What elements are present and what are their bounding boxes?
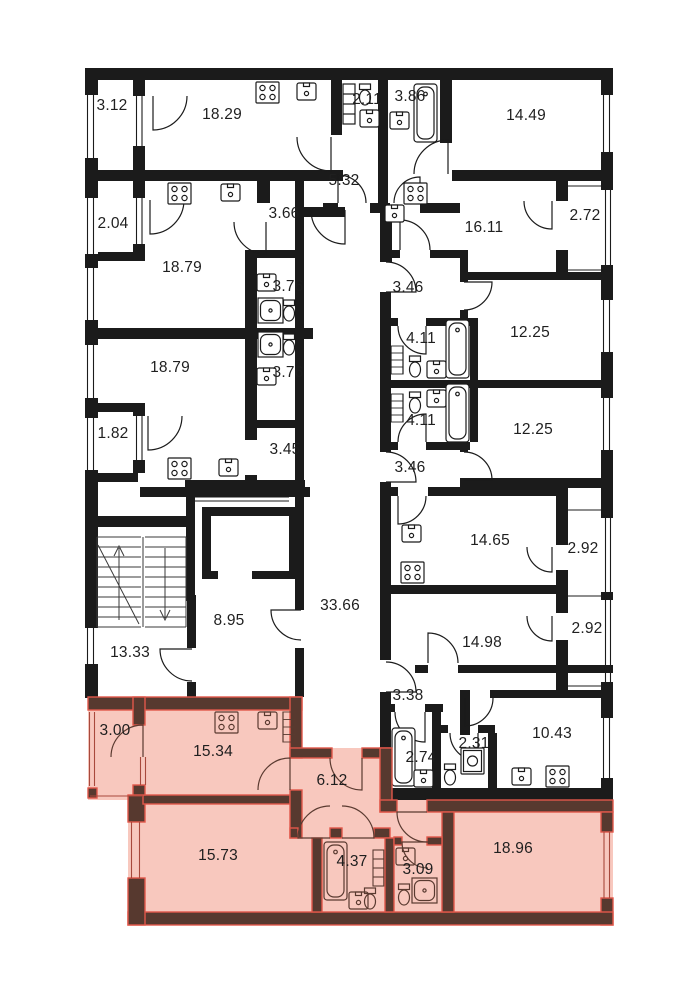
area-label-wc-2-74: 2.74 [406,749,437,767]
area-label-hall-3-46-a: 3.46 [393,279,424,297]
area-label-lift-lobby-8-95: 8.95 [214,612,245,630]
area-label-hl-hall-6-12: 6.12 [317,772,348,790]
area-label-hall-3-38: 3.38 [393,687,424,705]
area-label-hl-shower-3-09: 3.09 [403,861,434,879]
area-label-hall-5-32: 5.32 [329,172,360,190]
staircase [97,537,186,627]
area-label-room-14-49: 14.49 [506,107,546,125]
area-label-wc-2-31: 2.31 [459,735,490,753]
area-label-balcony-1-82: 1.82 [98,425,129,443]
area-label-corridor-33-66: 33.66 [320,597,360,615]
area-label-lobby-13-33: 13.33 [110,644,150,662]
area-label-hall-3-66: 3.66 [269,205,300,223]
area-label-room-14-65: 14.65 [470,532,510,550]
area-label-room-10-43: 10.43 [532,725,572,743]
area-label-bath-4-11-a: 4.11 [406,330,436,348]
area-label-balcony-2-72: 2.72 [570,207,601,225]
doors [148,96,552,761]
area-label-balcony-2-92-b: 2.92 [572,620,603,638]
area-label-room-18-79-b: 18.79 [150,359,190,377]
area-label-hall-3-45: 3.45 [270,441,301,459]
area-label-bath-3-76-b: 3.76 [273,364,304,382]
area-label-hl-room-15-73: 15.73 [198,847,238,865]
area-label-bath-3-86: 3.86 [395,88,426,106]
area-label-wc-2-11: 2.11 [352,91,382,109]
fixtures [168,82,569,787]
area-label-hl-balcony-3-00: 3.00 [100,722,131,740]
area-label-balcony-3-12: 3.12 [97,97,128,115]
area-label-room-12-25-a: 12.25 [510,324,550,342]
area-label-room-14-98: 14.98 [462,634,502,652]
area-label-room-12-25-b: 12.25 [513,421,553,439]
area-label-hall-3-46-b: 3.46 [395,459,426,477]
area-label-balcony-2-92-a: 2.92 [568,540,599,558]
floor-plan-canvas: 3.12 18.29 2.11 3.86 14.49 5.32 2.04 3.6… [0,0,700,990]
area-label-hl-bath-4-37: 4.37 [337,853,368,871]
area-label-balcony-2-04: 2.04 [98,215,129,233]
area-label-hl-kitchen-15-34: 15.34 [193,743,233,761]
floor-plan-drawing [0,0,700,990]
area-label-bath-3-76-a: 3.76 [273,278,304,296]
area-label-bath-4-11-b: 4.11 [406,412,436,430]
area-label-hl-room-18-96: 18.96 [493,840,533,858]
area-label-room-18-29: 18.29 [202,106,242,124]
area-label-room-16-11: 16.11 [465,219,504,237]
area-label-room-18-79-a: 18.79 [162,259,202,277]
